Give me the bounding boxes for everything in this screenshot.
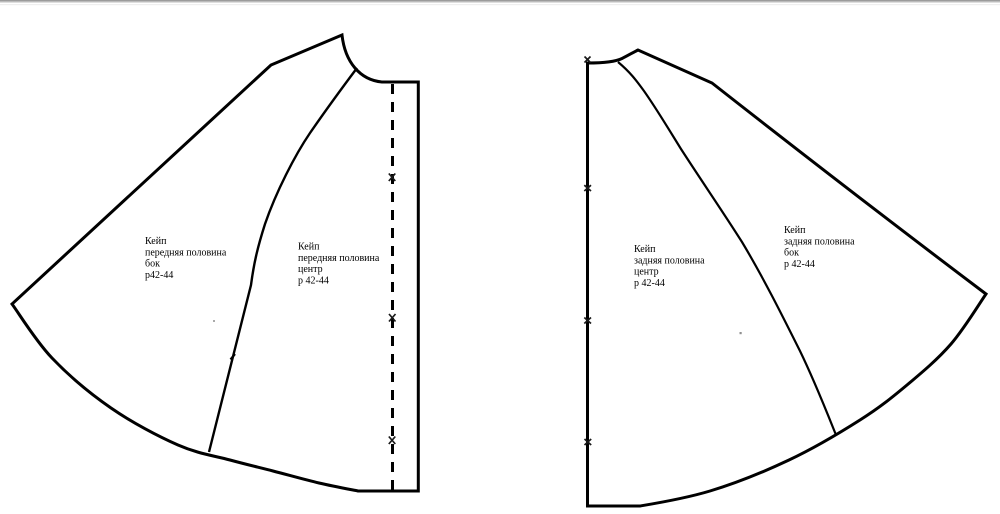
svg-text:р42-44: р42-44 bbox=[145, 270, 173, 281]
svg-text:центр: центр bbox=[634, 267, 659, 278]
svg-text:передняя половина: передняя половина bbox=[298, 253, 380, 264]
svg-text:задняя половина: задняя половина bbox=[784, 236, 855, 247]
svg-text:Кейп: Кейп bbox=[784, 225, 806, 236]
svg-text:бок: бок bbox=[145, 259, 160, 270]
svg-text:центр: центр bbox=[298, 264, 323, 275]
svg-text:Кейп: Кейп bbox=[634, 244, 656, 255]
svg-text:передняя половина: передняя половина bbox=[145, 247, 227, 258]
svg-text:р 42-44: р 42-44 bbox=[298, 275, 329, 286]
svg-text:Кейп: Кейп bbox=[145, 236, 167, 247]
svg-text:Кейп: Кейп bbox=[298, 242, 320, 253]
svg-text:задняя половина: задняя половина bbox=[634, 255, 705, 266]
svg-text:бок: бок bbox=[784, 248, 799, 259]
svg-text:р 42-44: р 42-44 bbox=[634, 278, 665, 289]
svg-text:р 42-44: р 42-44 bbox=[784, 259, 815, 270]
